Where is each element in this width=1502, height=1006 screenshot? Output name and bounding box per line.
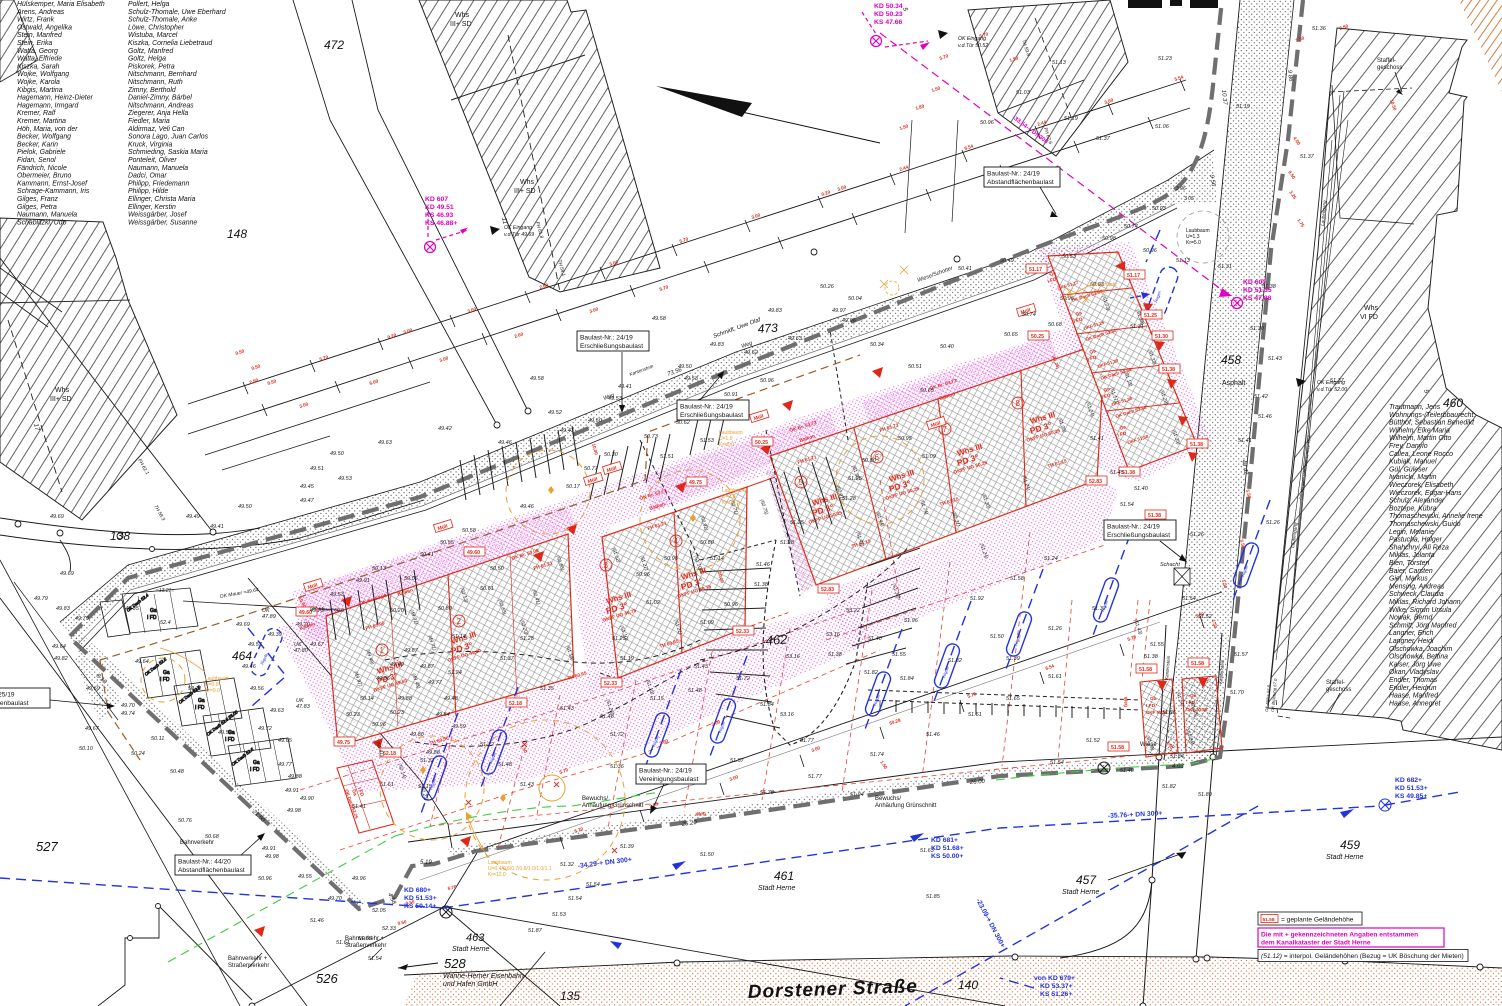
svg-text:527: 527 [36, 839, 58, 854]
svg-text:Nitschmann, Bernhard: Nitschmann, Bernhard [128, 71, 198, 78]
svg-text:Erschließungsbaulast: Erschließungsbaulast [580, 343, 643, 350]
svg-text:Löwe, Christopher: Löwe, Christopher [128, 24, 185, 31]
svg-text:51.23: 51.23 [1158, 56, 1173, 62]
svg-text:KD 607: KD 607 [425, 196, 448, 203]
svg-text:51.74: 51.74 [870, 752, 884, 758]
svg-text:Bahnverkehr: Bahnverkehr [180, 840, 214, 846]
svg-text:KS 50.00+: KS 50.00+ [931, 853, 963, 860]
svg-text:49.49: 49.49 [390, 662, 404, 668]
svg-text:3: 3 [604, 561, 609, 570]
svg-text:49.70: 49.70 [296, 622, 311, 628]
svg-text:49.54: 49.54 [436, 712, 450, 718]
svg-text:49.87: 49.87 [420, 664, 435, 670]
svg-text:51.39: 51.39 [620, 844, 634, 850]
svg-text:51.58: 51.58 [1010, 576, 1025, 582]
svg-text:Weissgärber, Susanne: Weissgärber, Susanne [128, 219, 197, 226]
svg-text:Stein, Manfred: Stein, Manfred [17, 32, 63, 39]
svg-text:50.11: 50.11 [151, 736, 164, 742]
svg-text:49.96: 49.96 [842, 318, 857, 324]
svg-text:53.16: 53.16 [826, 632, 841, 638]
svg-text:v.d.Tür 52.00: v.d.Tür 52.00 [1317, 387, 1347, 393]
svg-text:50.96: 50.96 [980, 120, 995, 126]
svg-text:Stadt Herne: Stadt Herne [452, 946, 489, 953]
svg-text:51.53: 51.53 [552, 912, 567, 918]
svg-text:Ga: Ga [1150, 696, 1157, 702]
svg-text:Wojke, Wolfgang: Wojke, Wolfgang [17, 71, 69, 78]
svg-text:Baulast-Nr.: 24/19: Baulast-Nr.: 24/19 [987, 171, 1040, 178]
svg-text:Wieczorek, Edgar-Hans: Wieczorek, Edgar-Hans [1389, 490, 1462, 497]
svg-text:≈13.21≈: ≈13.21≈ [156, 588, 174, 594]
svg-text:Whs: Whs [55, 387, 70, 394]
svg-text:49.88: 49.88 [426, 750, 441, 756]
svg-text:51.30: 51.30 [1155, 334, 1168, 340]
svg-text:52.33: 52.33 [736, 629, 749, 635]
svg-text:Baulast-Nr.: 24/19: Baulast-Nr.: 24/19 [639, 768, 692, 775]
svg-text:51.31: 51.31 [1130, 324, 1144, 330]
svg-text:Fiedler, Maria: Fiedler, Maria [128, 118, 170, 125]
svg-text:Wieczorek, Elisabeth: Wieczorek, Elisabeth [1389, 482, 1453, 489]
svg-text:UK: UK [294, 642, 302, 648]
svg-text:50.96: 50.96 [664, 556, 679, 562]
svg-text:51.43: 51.43 [1268, 356, 1283, 362]
svg-text:51.36: 51.36 [1312, 26, 1327, 32]
svg-text:47.80: 47.80 [294, 648, 309, 654]
svg-text:50.74: 50.74 [1124, 224, 1138, 230]
svg-text:Ostwald, Angelika: Ostwald, Angelika [17, 24, 72, 31]
svg-text:UK: UK [296, 698, 304, 704]
svg-text:49.47: 49.47 [300, 498, 315, 504]
svg-text:49.88: 49.88 [398, 696, 413, 702]
svg-text:49.45: 49.45 [300, 484, 315, 490]
svg-text:Philipp, Friedemann: Philipp, Friedemann [128, 180, 189, 187]
svg-text:51.17: 51.17 [1029, 267, 1042, 273]
svg-text:51.13: 51.13 [1176, 258, 1191, 264]
svg-text:Kaiser, Jörg Uwe: Kaiser, Jörg Uwe [1389, 661, 1441, 668]
svg-text:Okan, Vladyslav: Okan, Vladyslav [1389, 669, 1439, 676]
svg-text:49.70: 49.70 [121, 703, 136, 709]
svg-text:I FD: I FD [250, 767, 260, 773]
svg-text:51.38: 51.38 [828, 652, 843, 658]
svg-text:51.82: 51.82 [1162, 784, 1176, 790]
svg-text:51.45: 51.45 [1094, 289, 1107, 295]
svg-text:50.76: 50.76 [178, 818, 193, 824]
svg-text:50.74: 50.74 [1022, 312, 1036, 318]
svg-text:Kammann, Ernst-Josef: Kammann, Ernst-Josef [17, 180, 88, 187]
svg-text:51.50: 51.50 [990, 634, 1005, 640]
svg-text:51.28: 51.28 [780, 540, 795, 546]
svg-text:49.86: 49.86 [376, 676, 391, 682]
svg-text:49.64: 49.64 [135, 659, 149, 665]
svg-text:51.56: 51.56 [1162, 710, 1177, 716]
svg-text:Staffel-: Staffel- [1377, 58, 1396, 64]
svg-text:459: 459 [1340, 838, 1360, 852]
svg-text:51.57: 51.57 [730, 758, 745, 764]
svg-text:Staffel-: Staffel- [1326, 680, 1345, 686]
svg-text:51.94: 51.94 [850, 792, 864, 798]
svg-text:Bahnverkehr +: Bahnverkehr + [228, 956, 268, 962]
svg-text:49.72: 49.72 [258, 726, 272, 732]
svg-text:51.61: 51.61 [380, 782, 394, 788]
svg-text:53.16: 53.16 [786, 654, 801, 660]
svg-text:Sonora Lago, Juan Carlos: Sonora Lago, Juan Carlos [128, 134, 209, 141]
svg-text:49.87: 49.87 [404, 648, 419, 654]
svg-text:51.40: 51.40 [1120, 768, 1135, 774]
svg-text:Arens, Andreas: Arens, Andreas [16, 9, 65, 16]
svg-text:Haase, Annegret: Haase, Annegret [1389, 700, 1442, 707]
svg-text:50.58: 50.58 [462, 528, 477, 534]
svg-text:49.69: 49.69 [86, 686, 100, 692]
svg-text:47.83: 47.83 [296, 704, 311, 710]
svg-text:51.38: 51.38 [1144, 654, 1159, 660]
svg-text:Schulz-Thomale, Uwe Eberhard: Schulz-Thomale, Uwe Eberhard [128, 9, 227, 16]
svg-text:Watta, Georg: Watta, Georg [17, 48, 58, 55]
svg-text:51.84: 51.84 [1170, 754, 1184, 760]
svg-text:50.04: 50.04 [848, 296, 862, 302]
svg-text:Wirtz, Frank: Wirtz, Frank [17, 17, 55, 24]
svg-text:50.10: 50.10 [79, 746, 94, 752]
svg-text:Ga: Ga [150, 608, 157, 614]
svg-text:Wohnungs-/Teilerbbaurecht:: Wohnungs-/Teilerbbaurecht: [1389, 412, 1475, 419]
svg-text:Höh, Maria, von der: Höh, Maria, von der [17, 126, 78, 133]
svg-text:51.25: 51.25 [520, 636, 535, 642]
svg-text:50.30: 50.30 [604, 452, 619, 458]
svg-text:50.93: 50.93 [1152, 206, 1167, 212]
svg-text:51.48: 51.48 [600, 714, 615, 720]
svg-text:Schacht: Schacht [1160, 562, 1180, 568]
svg-text:49.65: 49.65 [278, 738, 293, 744]
svg-text:Thomaschewski, Guido: Thomaschewski, Guido [1389, 521, 1461, 528]
svg-text:Legin, Melanie: Legin, Melanie [1389, 529, 1434, 536]
svg-text:51.40: 51.40 [1134, 486, 1149, 492]
svg-text:50.80: 50.80 [862, 458, 877, 464]
svg-text:KD 680+: KD 680+ [404, 887, 431, 894]
svg-text:528: 528 [444, 956, 466, 971]
svg-text:526: 526 [316, 971, 338, 986]
svg-text:49.77: 49.77 [428, 680, 443, 686]
svg-text:49.74: 49.74 [121, 711, 135, 717]
svg-text:50.80: 50.80 [438, 606, 453, 612]
svg-text:Goltz, Manfred: Goltz, Manfred [128, 48, 174, 55]
svg-text:49.69: 49.69 [236, 622, 250, 628]
svg-text:51.54: 51.54 [586, 882, 600, 888]
svg-text:Gilges, Petra: Gilges, Petra [17, 204, 57, 211]
svg-text:Schweck, Claudia: Schweck, Claudia [1389, 591, 1444, 598]
svg-text:Wistuba, Marcel: Wistuba, Marcel [128, 32, 178, 39]
svg-text:geschoss: geschoss [1377, 65, 1402, 71]
svg-text:51.02: 51.02 [646, 600, 660, 606]
svg-text:Erschließungsbaulast: Erschließungsbaulast [1107, 532, 1170, 539]
svg-text:49.56: 49.56 [250, 686, 265, 692]
svg-text:1: 1 [380, 646, 385, 655]
svg-text:Nitschmann, Ruth: Nitschmann, Ruth [128, 79, 183, 86]
svg-text:flächenbaulast: flächenbaulast [0, 700, 29, 707]
svg-text:KD 49.51: KD 49.51 [425, 204, 454, 211]
svg-text:51.84: 51.84 [900, 676, 914, 682]
svg-text:51.38: 51.38 [754, 582, 769, 588]
svg-text:51.58: 51.58 [1191, 661, 1204, 667]
svg-text:Abstandflächenbaulast: Abstandflächenbaulast [987, 179, 1054, 186]
svg-text:140: 140 [958, 978, 978, 992]
svg-text:3 05: 3 05 [1184, 196, 1194, 202]
svg-text:51.30: 51.30 [1250, 326, 1265, 332]
svg-text:52.4: 52.4 [160, 620, 171, 626]
svg-text:Wilhelm, Martin Otto: Wilhelm, Martin Otto [1389, 435, 1452, 442]
svg-text:51.38: 51.38 [1162, 367, 1175, 373]
svg-text:51.37: 51.37 [1096, 136, 1111, 142]
svg-text:51.13: 51.13 [1052, 60, 1067, 66]
svg-text:464: 464 [232, 649, 252, 663]
svg-text:KS 49.85+: KS 49.85+ [1395, 793, 1427, 800]
svg-text:51.03: 51.03 [1016, 90, 1031, 96]
svg-text:148: 148 [227, 227, 247, 241]
svg-text:Hagemann, Heinz-Dieter: Hagemann, Heinz-Dieter [17, 95, 94, 102]
svg-text:51.70: 51.70 [1230, 690, 1245, 696]
svg-text:Langner, Erich: Langner, Erich [1389, 630, 1434, 637]
svg-text:KD 51.53+: KD 51.53+ [404, 895, 437, 902]
svg-text:5.19: 5.19 [420, 860, 432, 866]
svg-text:49.70: 49.70 [328, 896, 343, 902]
svg-text:49.42: 49.42 [438, 426, 452, 432]
svg-text:51.89: 51.89 [1198, 792, 1212, 798]
svg-text:50.41: 50.41 [420, 552, 434, 558]
svg-text:49.91: 49.91 [356, 578, 370, 584]
svg-text:50.95: 50.95 [898, 436, 913, 442]
svg-text:51.46: 51.46 [310, 918, 325, 924]
svg-text:Ga: Ga [253, 760, 260, 766]
svg-text:51.58: 51.58 [1139, 667, 1152, 673]
svg-text:49.50: 49.50 [238, 504, 253, 510]
svg-text:Weg: Weg [1122, 697, 1129, 708]
svg-text:Schrage-Kammann, Iris: Schrage-Kammann, Iris [17, 188, 90, 195]
svg-text:51.52: 51.52 [1198, 614, 1212, 620]
svg-text:Baulast-Nr.: 24/19: Baulast-Nr.: 24/19 [1107, 524, 1160, 531]
svg-text:49.77: 49.77 [278, 762, 293, 768]
svg-text:50.96: 50.96 [372, 722, 387, 728]
svg-text:51.54: 51.54 [368, 956, 382, 962]
svg-text:Aldirmaz, Veli Can: Aldirmaz, Veli Can [127, 126, 185, 133]
svg-text:51.57: 51.57 [1234, 652, 1249, 658]
svg-text:49.41: 49.41 [618, 384, 632, 390]
svg-text:49.58: 49.58 [652, 316, 667, 322]
svg-text:v.d.Tür 49.69: v.d.Tür 49.69 [504, 232, 534, 238]
svg-text:50.25: 50.25 [1031, 334, 1044, 340]
svg-text:Pielok, Gabriele: Pielok, Gabriele [17, 149, 66, 156]
svg-text:52.05: 52.05 [372, 908, 387, 914]
svg-text:Boztepe, Kübra: Boztepe, Kübra [1389, 505, 1437, 512]
svg-text:49.63: 49.63 [270, 708, 285, 714]
svg-text:51.46: 51.46 [926, 732, 941, 738]
svg-text:Becker, Wolfgang: Becker, Wolfgang [17, 134, 71, 141]
svg-text:51.61: 51.61 [1048, 674, 1062, 680]
svg-text:49.83: 49.83 [710, 342, 725, 348]
svg-text:50.96: 50.96 [258, 876, 273, 882]
svg-text:52.83: 52.83 [1089, 479, 1102, 485]
svg-text:Asphalt: Asphalt [1222, 380, 1245, 387]
svg-text:Callea, Leone Rocco: Callea, Leone Rocco [1389, 451, 1453, 458]
svg-text:UK: UK [262, 608, 270, 614]
svg-text:51.77: 51.77 [808, 774, 823, 780]
svg-text:Frey, Danylo: Frey, Danylo [1389, 443, 1428, 450]
svg-text:49.83: 49.83 [56, 606, 71, 612]
svg-text:50.06: 50.06 [404, 576, 419, 582]
svg-text:50.98: 50.98 [1102, 236, 1117, 242]
svg-text:7: 7 [943, 425, 948, 434]
svg-text:52.18: 52.18 [509, 701, 522, 707]
svg-text:Kiszka, Sarah: Kiszka, Sarah [17, 63, 60, 70]
svg-text:51.50: 51.50 [700, 852, 715, 858]
svg-text:51.32: 51.32 [420, 758, 434, 764]
svg-text:50.41: 50.41 [958, 266, 972, 272]
svg-text:51.19: 51.19 [1236, 104, 1250, 110]
svg-text:I FD: I FD [160, 677, 170, 683]
svg-text:Gilges, Franz: Gilges, Franz [17, 196, 59, 203]
svg-text:Straßenverkehr: Straßenverkehr [228, 963, 269, 969]
svg-text:KS 51.26+: KS 51.26+ [1040, 991, 1072, 998]
svg-text:49.50: 49.50 [678, 364, 693, 370]
svg-text:Die mit + gekennzeichneten Ang: Die mit + gekennzeichneten Angaben entst… [1261, 932, 1418, 939]
svg-text:KS 46.93: KS 46.93 [425, 212, 454, 219]
svg-text:III+ SD: III+ SD [450, 21, 472, 28]
svg-text:51.38: 51.38 [1148, 513, 1161, 519]
svg-text:Stadt Herne: Stadt Herne [758, 885, 795, 892]
svg-text:Wilhelm, Elke Maria: Wilhelm, Elke Maria [1389, 427, 1450, 434]
svg-text:Naumann, Manuela: Naumann, Manuela [17, 212, 77, 219]
svg-text:50.77: 50.77 [584, 466, 599, 472]
svg-text:463: 463 [466, 932, 485, 944]
svg-text:Schmitt, Jörg Manfred: Schmitt, Jörg Manfred [1389, 622, 1458, 629]
svg-text:Thomaschewski, Annelie Irene: Thomaschewski, Annelie Irene [1389, 513, 1483, 520]
svg-text:Anhäufung Grünschnitt: Anhäufung Grünschnitt [582, 803, 644, 809]
svg-text:49.60: 49.60 [467, 550, 480, 556]
svg-text:Whs: Whs [1364, 305, 1379, 312]
svg-text:49.79: 49.79 [75, 616, 89, 622]
svg-text:51.87: 51.87 [528, 928, 543, 934]
svg-text:51.51: 51.51 [660, 454, 674, 460]
svg-text:Anhäufung Grünschnitt: Anhäufung Grünschnitt [875, 803, 937, 809]
svg-text:Endler, Heidrun: Endler, Heidrun [1389, 685, 1437, 692]
svg-text:Stein, Erika: Stein, Erika [17, 40, 52, 47]
svg-text:Piskorek, Petra: Piskorek, Petra [128, 63, 175, 70]
svg-text:Hagemann, Irmgard: Hagemann, Irmgard [17, 102, 79, 109]
svg-text:49.69: 49.69 [50, 514, 64, 520]
svg-text:49.96: 49.96 [352, 876, 367, 882]
svg-text:49.75: 49.75 [337, 740, 350, 746]
svg-text:Stadt Herne: Stadt Herne [1062, 889, 1099, 896]
svg-text:Kruck, Virginia: Kruck, Virginia [128, 141, 172, 148]
svg-text:51.52: 51.52 [1086, 738, 1100, 744]
svg-text:51.41: 51.41 [1090, 436, 1104, 442]
svg-text:50.14: 50.14 [360, 696, 374, 702]
svg-text:KS 46.88+: KS 46.88+ [425, 220, 457, 227]
svg-text:50.26: 50.26 [820, 284, 835, 290]
svg-text:Whs: Whs [520, 179, 535, 186]
svg-text:50.65: 50.65 [1004, 332, 1019, 338]
svg-text:4: 4 [674, 537, 679, 546]
svg-text:49.97: 49.97 [832, 308, 847, 314]
svg-text:50.62: 50.62 [676, 420, 690, 426]
svg-text:51.25: 51.25 [790, 520, 805, 526]
svg-text:OK Eingang: OK Eingang [504, 225, 532, 231]
svg-text:Shahchryi, Ali Reza: Shahchryi, Ali Reza [1389, 544, 1449, 551]
svg-text:51.48: 51.48 [688, 688, 703, 694]
svg-text:Daniel-Zimny, Bärbel: Daniel-Zimny, Bärbel [128, 95, 192, 102]
svg-text:3 06: 3 06 [1176, 186, 1186, 192]
svg-text:Nr.: 25/19: Nr.: 25/19 [0, 692, 15, 699]
svg-text:50.61: 50.61 [480, 586, 494, 592]
svg-text:Bewuchs/: Bewuchs/ [875, 796, 901, 802]
svg-text:51.48: 51.48 [498, 762, 513, 768]
svg-text:Bahnverkehr +: Bahnverkehr + [345, 936, 385, 942]
svg-text:51.14: 51.14 [452, 634, 466, 640]
svg-text:51.35: 51.35 [540, 686, 555, 692]
svg-text:KD 682+: KD 682+ [1395, 777, 1422, 784]
svg-text:51.25: 51.25 [1144, 313, 1157, 319]
svg-text:Iwanicki, Martin: Iwanicki, Martin [1389, 474, 1437, 481]
svg-text:2: 2 [457, 617, 462, 626]
svg-text:Naumann, Manuela: Naumann, Manuela [128, 165, 188, 172]
svg-text:49.58: 49.58 [530, 376, 545, 382]
svg-text:51.54: 51.54 [1120, 502, 1134, 508]
svg-text:51.72: 51.72 [736, 676, 750, 682]
svg-text:Endler, Thomas: Endler, Thomas [1389, 677, 1438, 684]
svg-text:51.46: 51.46 [756, 562, 771, 568]
svg-text:51.26: 51.26 [1266, 520, 1281, 526]
svg-text:Ellinger, Christa Maria: Ellinger, Christa Maria [128, 196, 196, 203]
svg-text:KD 681+: KD 681+ [931, 837, 958, 844]
svg-text:51.32: 51.32 [560, 862, 574, 868]
svg-text:49.58: 49.58 [218, 730, 233, 736]
svg-text:Schulz, Alexander: Schulz, Alexander [1389, 498, 1445, 505]
svg-text:52.83: 52.83 [821, 587, 834, 593]
svg-text:Fändrich, Nicole: Fändrich, Nicole [17, 165, 67, 172]
svg-text:50.49: 50.49 [1000, 258, 1014, 264]
svg-text:geschoss: geschoss [1326, 687, 1351, 693]
svg-text:III+ SD: III+ SD [514, 188, 536, 195]
svg-text:49.39: 49.39 [268, 632, 282, 638]
svg-text:Straßenverkehr: Straßenverkehr [345, 943, 386, 949]
svg-text:49.41: 49.41 [210, 524, 224, 530]
svg-text:51.24: 51.24 [1044, 556, 1058, 562]
svg-text:51.72: 51.72 [610, 732, 624, 738]
svg-text:Becker, Karin: Becker, Karin [17, 141, 58, 148]
svg-text:Ga: Ga [163, 670, 170, 676]
svg-text:50.80: 50.80 [700, 540, 715, 546]
svg-text:Baulast-Nr.: 24/19: Baulast-Nr.: 24/19 [580, 335, 633, 342]
svg-text:Trautmann, Jens: Trautmann, Jens [1389, 404, 1441, 411]
svg-text:49.64: 49.64 [52, 644, 66, 650]
svg-text:49.63: 49.63 [788, 336, 803, 342]
svg-text:KD 53.37+: KD 53.37+ [1040, 983, 1073, 990]
svg-text:51.14: 51.14 [710, 556, 724, 562]
svg-text:51.45: 51.45 [1110, 470, 1125, 476]
svg-text:50.34: 50.34 [870, 342, 884, 348]
svg-text:50.40: 50.40 [940, 344, 955, 350]
svg-text:49.55: 49.55 [298, 874, 313, 880]
svg-text:KS 50.14+: KS 50.14+ [404, 903, 436, 910]
svg-text:47.89: 47.89 [262, 614, 276, 620]
svg-text:50.96: 50.96 [636, 572, 651, 578]
svg-text:50.50: 50.50 [490, 566, 505, 572]
svg-text:Schmieding, Saskia Maria: Schmieding, Saskia Maria [128, 149, 208, 156]
svg-text:Mensing, Andreas: Mensing, Andreas [1389, 583, 1445, 590]
svg-text:49.80: 49.80 [410, 732, 425, 738]
svg-text:26.00: 26.00 [969, 779, 986, 786]
svg-text:51.06: 51.06 [1155, 124, 1170, 130]
svg-text:51.26: 51.26 [1190, 532, 1205, 538]
svg-text:49.85: 49.85 [125, 606, 140, 612]
svg-text:Kr=5.0: Kr=5.0 [1186, 240, 1201, 246]
svg-text:Kiszka, Cornelia Liebetraud: Kiszka, Cornelia Liebetraud [128, 40, 213, 47]
